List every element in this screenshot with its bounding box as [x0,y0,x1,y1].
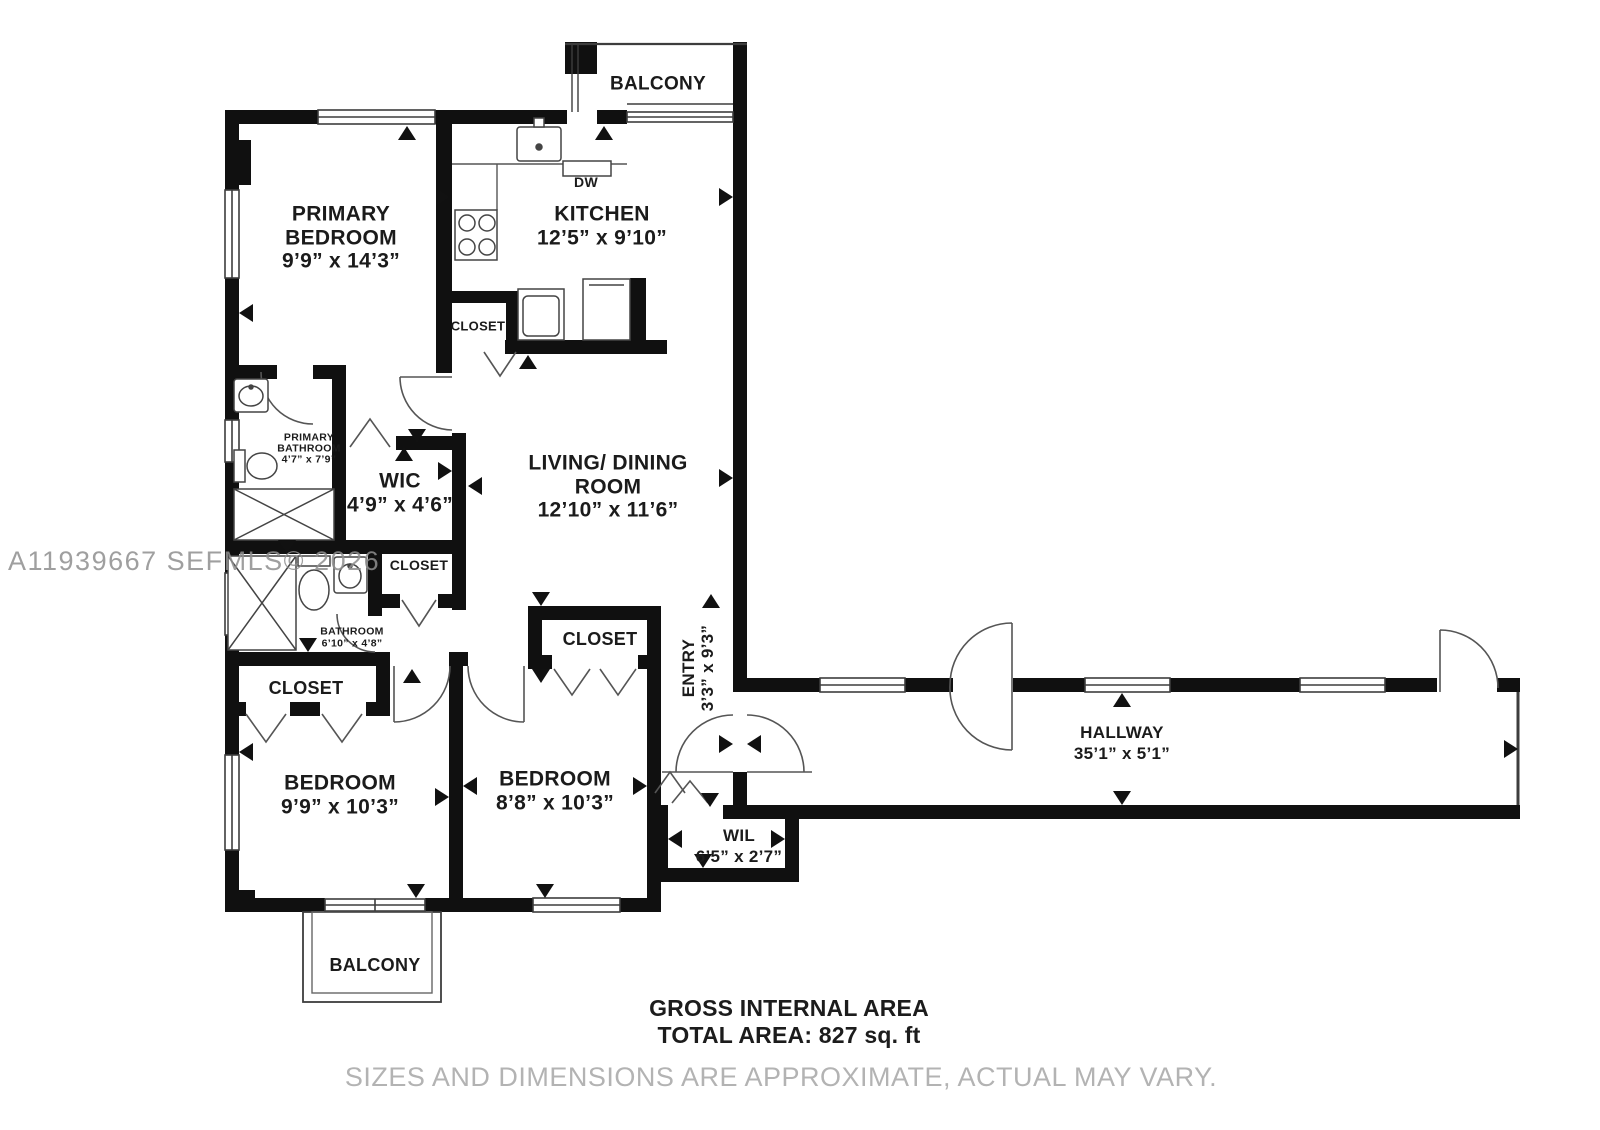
room-label-primary-bathroom: PRIMARY BATHROOM 4’7” x 7’9” [271,432,347,465]
room-label-closet-kitchen: CLOSET [451,320,506,335]
room-label-bedroom-left: BEDROOM 9’9” x 10’3” [281,771,399,818]
door-hallway-double [950,623,1012,750]
window-hallway-1 [820,678,905,692]
room-label-closet-middle: CLOSET [390,558,449,574]
disclaimer-text: SIZES AND DIMENSIONS ARE APPROXIMATE, AC… [345,1062,1217,1093]
window-left-1 [225,190,239,278]
sliding-door-balcony-top [627,112,733,122]
fridge [583,279,630,340]
room-label-bathroom: BATHROOM 6’10” x 4’8” [320,626,383,649]
room-label-kitchen: KITCHEN 12’5” x 9’10” [537,202,667,249]
door-hallway-end [1440,630,1498,692]
door-primary-bedroom [400,377,452,430]
window-hallway-2 [1085,678,1170,692]
thin-walls [303,44,1518,1002]
window-hallway-3 [1300,678,1385,692]
door-entry-double [662,715,812,772]
room-label-closet-bedroom-left: CLOSET [269,678,344,698]
gross-internal-area-title: GROSS INTERNAL AREA [649,995,929,1022]
room-label-hallway: HALLWAY 35’1” x 5’1” [1074,722,1170,765]
kitchen-sink [517,118,561,161]
chevron-closet-middle [402,600,436,626]
stove [455,210,497,260]
room-label-bedroom-right: BEDROOM 8’8” x 10’3” [496,767,614,814]
primary-bathroom-sink [234,379,268,412]
window-bedroom-right-bottom [533,898,620,912]
room-label-wic: WIC 4’9” x 4’6” [347,469,453,516]
chevron-wil-opening [672,781,708,803]
washer [518,289,564,340]
primary-bathroom-shower [234,489,334,540]
chevron-closet-left-1 [246,714,286,742]
room-label-primary-bedroom: PRIMARY BEDROOM 9’9” x 14’3” [273,203,409,274]
door-primary-bathroom [261,372,313,424]
chevron-closet-right-1 [554,669,590,695]
room-label-living-dining: LIVING/ DINING ROOM 12’10” x 11’6” [523,452,693,523]
room-label-entry: ENTRY 3’3” x 9’3” [679,625,717,711]
chevron-wic-opening [350,419,390,447]
label-dishwasher: DW [574,175,598,191]
chevron-closet-left-2 [322,714,362,742]
door-bedroom-left [394,666,450,722]
room-label-wil: WIL 6’5” x 2’7” [696,825,782,868]
window-primary-bedroom-top [318,110,435,124]
watermark-text: A11939667 SEFMLS© 2026 [8,546,380,577]
chevron-closet-right-2 [600,669,636,695]
sliding-door-balcony-bottom [325,899,425,911]
window-left-4 [225,755,239,850]
floorplan-page: BALCONY PRIMARY BEDROOM 9’9” x 14’3” KIT… [0,0,1600,1130]
door-bedroom-right [468,666,524,722]
chevron-closet-kitchen [484,352,516,376]
total-area-value: TOTAL AREA: 827 sq. ft [658,1022,921,1049]
room-label-closet-bedroom-right: CLOSET [563,629,638,649]
room-label-balcony-bottom: BALCONY [329,955,420,975]
room-label-balcony-top: BALCONY [610,73,706,94]
